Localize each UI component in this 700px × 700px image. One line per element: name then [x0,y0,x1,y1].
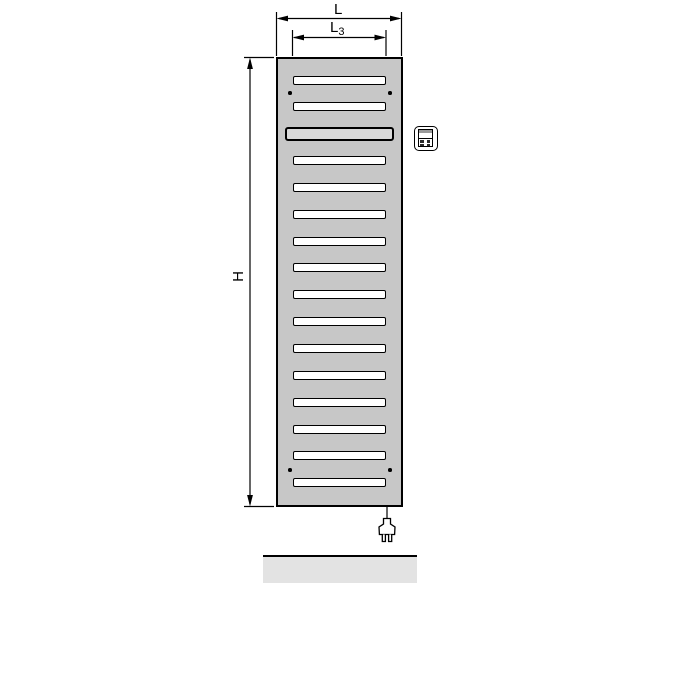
power-plug-icon [379,506,395,542]
thermostat-key [427,140,430,143]
slot [293,371,386,380]
screw-hole [288,468,292,472]
slot [293,263,386,272]
dim-label-height: H [231,271,246,282]
screw-hole [388,91,392,95]
radiator-panel [276,57,403,507]
slot [293,317,386,326]
thermostat-keypad [419,139,432,148]
slot [293,398,386,407]
thermostat-key [420,140,423,143]
dim-label-overall-width: L [334,2,342,17]
slot [293,290,386,299]
slot [293,237,386,246]
dim-label-slot-width: L3 [330,20,344,37]
slot [293,102,386,111]
thermostat-key [420,144,423,147]
thermostat-key [427,144,430,147]
screw-hole [388,468,392,472]
slot [293,76,386,85]
slot [293,156,386,165]
screw-hole [288,91,292,95]
thermostat-keys-right [427,140,430,147]
thermostat-keys-left [420,140,423,147]
thermostat-control-body [418,129,433,147]
framed-slot [285,127,394,141]
slot [293,344,386,353]
slot [293,425,386,434]
floor-line [263,555,417,583]
slot [293,451,386,460]
slot [293,183,386,192]
thermostat-control-icon [414,126,438,151]
slot [293,210,386,219]
slot [293,478,386,487]
dimension-H-lines [244,58,274,507]
dim-label-slot-width-subscript: 3 [338,26,344,38]
radiator-technical-drawing: L L3 H [0,0,700,700]
